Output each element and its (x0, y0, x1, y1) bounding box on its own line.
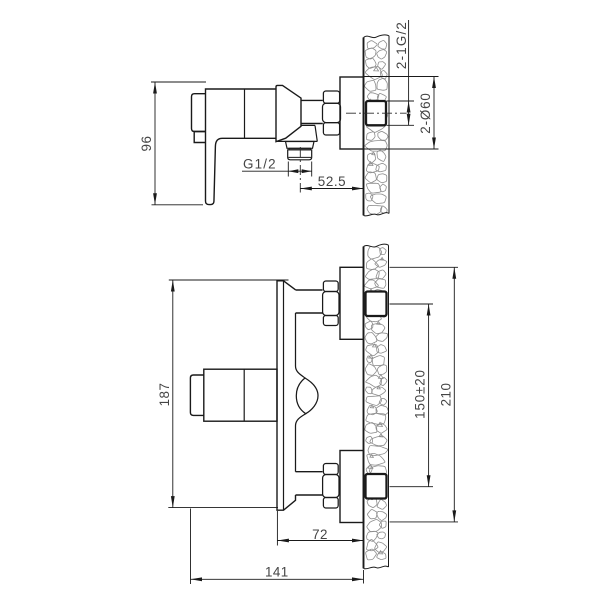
svg-text:210: 210 (439, 383, 454, 407)
svg-text:187: 187 (157, 383, 172, 407)
svg-text:G1/2: G1/2 (243, 156, 277, 171)
svg-text:2-1G/2: 2-1G/2 (394, 21, 409, 69)
svg-text:150±20: 150±20 (413, 369, 428, 419)
svg-text:72: 72 (312, 527, 328, 542)
svg-text:52.5: 52.5 (318, 174, 346, 189)
svg-text:141: 141 (265, 565, 289, 580)
svg-text:96: 96 (139, 136, 154, 152)
svg-text:2-Ø60: 2-Ø60 (418, 92, 433, 133)
